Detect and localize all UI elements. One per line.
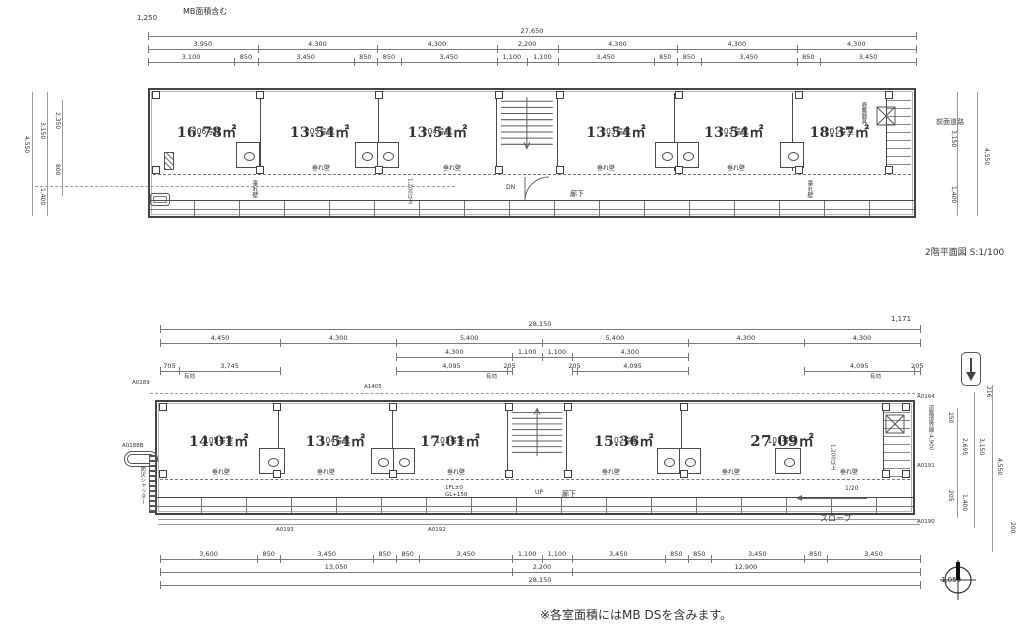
slope-ratio-label: 1/20 [845, 486, 858, 493]
entrance-arrow-box [961, 352, 981, 386]
room-area: 13.54㎡ [306, 434, 366, 450]
dimension-segment: 3,450 [701, 51, 797, 63]
dimension-segment: 12,900 [572, 561, 920, 573]
dimension-segment: 1,100 [512, 548, 542, 560]
dimension-segment [280, 360, 396, 372]
dimension-segment: 4,300 [804, 332, 920, 344]
column-marker [902, 403, 910, 411]
grid-line-a1405 [150, 393, 920, 394]
dimension-segment: 850 [257, 548, 280, 560]
room-area: 17.01㎡ [420, 434, 480, 450]
dimension-segment: 1,100 [542, 346, 572, 358]
column-marker [505, 403, 513, 411]
bath-unit-icon [780, 142, 804, 168]
dim-row-2f-sub: 3,1008503,4508508503,4501,1001,1003,4508… [148, 51, 916, 63]
dimension-segment: 5,400 [542, 332, 688, 344]
dimension-segment: 3,450 [419, 548, 512, 560]
ref-a0192: A0192 [428, 527, 446, 533]
room-area: 13.54㎡ [586, 125, 646, 141]
dimension-segment: 13,050 [160, 561, 512, 573]
label-road-boundary: 道路境界線:4,900 [927, 405, 933, 450]
dimension-segment: 4,095 [396, 360, 507, 372]
room-area: 18.37㎡ [810, 125, 870, 141]
column-marker [885, 91, 893, 99]
dim-216: 216 [984, 386, 991, 397]
bath-unit-icon [657, 448, 701, 474]
dimension-segment: 850 [688, 548, 711, 560]
dimension-segment: 28,150 [160, 318, 920, 330]
dim-right-lower: 1,400 [949, 186, 956, 203]
dimension-segment: 3,950 [148, 38, 258, 50]
dimension-segment [688, 360, 804, 372]
equipment-icon [150, 193, 170, 206]
tarekabe-dashed-line [160, 479, 910, 480]
site-boundary-line [35, 186, 455, 187]
dim-extension-line [62, 100, 63, 196]
dim-row-1f-sub1: 4,3001,1001,1004,300 [160, 346, 920, 358]
label-tarekabe: 垂れ壁 [212, 470, 230, 477]
column-marker [675, 166, 683, 174]
dimension-segment: 850 [654, 51, 678, 63]
dimension-segment: 4,095 [804, 360, 915, 372]
dimension-segment: 4,095 [577, 360, 688, 372]
column-marker [564, 403, 572, 411]
column-marker [556, 91, 564, 99]
dimension-segment: 1,100 [527, 51, 558, 63]
label-tarekabe: 垂れ壁 [722, 470, 740, 477]
dimension-segment: 850 [234, 51, 258, 63]
dimension-segment: 3,450 [280, 548, 373, 560]
dim-row-1f-bottom-sub: 3,6008503,4508508503,4501,1001,1003,4508… [160, 548, 920, 560]
dim-250: 250 [946, 412, 953, 423]
evacuation-equipment-icon [885, 414, 905, 434]
dimension-segment [280, 346, 396, 358]
tarekabe-dashed-line [153, 174, 911, 175]
dimension-segment: 4,450 [160, 332, 280, 344]
column-marker [495, 91, 503, 99]
dim-extension-line [992, 385, 993, 552]
column-marker [795, 91, 803, 99]
column-marker [680, 470, 688, 478]
dimension-segment: 1,100 [497, 51, 528, 63]
label-tarekabe: 垂れ壁 [840, 470, 858, 477]
north-compass-icon [936, 556, 980, 600]
column-marker [375, 91, 383, 99]
stair-direction-label: DN [506, 185, 515, 192]
level-note-1fl: 1FL±0 [445, 485, 463, 491]
dimension-segment: 4,300 [377, 38, 496, 50]
dimension-segment: 4,300 [797, 38, 916, 50]
dimension-segment: 850 [804, 548, 827, 560]
column-marker [564, 470, 572, 478]
dimension-segment: 4,300 [677, 38, 796, 50]
exterior-stair-2f [887, 93, 911, 171]
bath-unit-icon [655, 142, 699, 168]
dimension-segment: 1,100 [542, 548, 572, 560]
ref-a0164: A0164 [917, 394, 935, 400]
bath-unit-icon [355, 142, 399, 168]
corridor-label: 廊下 [570, 190, 584, 198]
dimension-segment: 3,450 [827, 548, 920, 560]
label-evacuation: 避難器具 [860, 102, 866, 124]
bath-unit-icon [236, 142, 260, 168]
ref-a0191: A0191 [917, 463, 935, 469]
column-marker [273, 470, 281, 478]
dim-right-upper: 3,150 [949, 130, 956, 147]
column-marker [902, 470, 910, 478]
dim-left-lower: 1,400 [38, 188, 45, 205]
stairs-icon [508, 405, 566, 477]
label-tarekabe: 垂れ壁 [312, 166, 330, 173]
column-marker [159, 470, 167, 478]
dimension-segment: 4,300 [558, 38, 677, 50]
dim-3150: 3,150 [977, 438, 984, 455]
dim-row-1f-bottom-overall: 28,150 [160, 574, 920, 586]
dimension-segment: 4,300 [572, 346, 688, 358]
label-front-road: 前面道路 [936, 118, 964, 126]
dimension-segment [160, 346, 280, 358]
dim-extension-line [47, 92, 48, 216]
evacuation-equipment-icon [876, 106, 896, 126]
column-marker [882, 403, 890, 411]
dim-left-total: 4,550 [22, 136, 29, 153]
room-201: 201号室 18.37㎡ [793, 93, 886, 171]
room-area: 13.54㎡ [290, 125, 350, 141]
label-slope: スロープ [820, 514, 852, 523]
column-marker [495, 166, 503, 174]
column-hatch-icon [164, 152, 174, 170]
dimension-segment: 850 [677, 51, 701, 63]
label-tarekabe: 垂れ壁 [250, 180, 257, 198]
ref-a0188: A0188B [122, 443, 144, 449]
column-marker [675, 91, 683, 99]
dim-row-2f-overall: 27,650 [148, 25, 916, 37]
dim-row-2f-bays: 3,9504,3004,3002,2004,3004,3004,300 [148, 38, 916, 50]
label-tarekabe: 垂れ壁 [597, 166, 615, 173]
column-marker [152, 166, 160, 174]
dim-1171: 1,171 [891, 315, 911, 323]
dim-extension-line [957, 408, 958, 518]
dimension-segment: 3,745 [179, 360, 280, 372]
floor-plan-2f: 206号室 16.78㎡ 205号室 13.54㎡ 204号室 13.54㎡ [148, 88, 916, 218]
label-yuko: 有効 [184, 374, 195, 380]
dimension-segment: 4,300 [396, 346, 512, 358]
dimension-segment: 2,200 [512, 561, 571, 573]
dim-4550: 4,550 [995, 458, 1002, 475]
dim-left-upper: 3,150 [38, 122, 45, 139]
dim-left-inner-upper: 2,350 [53, 112, 60, 129]
stairs-icon [497, 93, 557, 171]
dimension-segment: 1,100 [512, 346, 542, 358]
dimension-segment: 3,450 [820, 51, 916, 63]
dimension-segment: 28,150 [160, 574, 920, 586]
room-area: 13.54㎡ [704, 125, 764, 141]
dimension-segment [542, 360, 572, 372]
south-wall-windows [150, 200, 914, 216]
dim-1250: 1,250 [137, 14, 157, 22]
column-marker [680, 403, 688, 411]
dim-left-inner-lower: 800 [53, 164, 60, 175]
label-tarekabe: 垂れ壁 [443, 166, 461, 173]
label-tarekabe: 垂れ壁 [317, 470, 335, 477]
label-min-width: 1,200以上 [829, 444, 835, 471]
south-wall-windows [157, 497, 913, 513]
walkway-edge-line [158, 524, 920, 525]
label-tarekabe: 垂れ壁 [805, 180, 812, 198]
bath-unit-icon [259, 448, 285, 474]
dimension-segment: 3,600 [160, 548, 257, 560]
dim-extension-line [957, 92, 958, 216]
dim-extension-line [977, 92, 978, 216]
dimension-segment: 205 [914, 360, 920, 372]
dimension-segment: 850 [797, 51, 821, 63]
dim-205: 205 [946, 490, 953, 501]
dim-right-total: 4,550 [982, 148, 989, 165]
dimension-segment: 5,400 [396, 332, 542, 344]
architectural-drawing-sheet: MB面積含む 1,250 27,650 3,9504,3004,3002,200… [0, 0, 1024, 635]
dim-200: 200 [1008, 522, 1015, 533]
door-swing-icon [524, 176, 550, 202]
dimension-segment: 850 [373, 548, 396, 560]
label-tarekabe: 垂れ壁 [602, 470, 620, 477]
plan-2f-title: 2階平面図 S:1/100 [925, 248, 1004, 258]
dimension-segment: 850 [665, 548, 688, 560]
dim-2695: 2,695 [960, 438, 967, 455]
dimension-segment: 3,100 [148, 51, 234, 63]
dim-row-1f-sub2: 7053,7454,0952052054,0954,095205 [160, 360, 920, 372]
mb-area-note: MB面積含む [183, 7, 227, 16]
column-marker [159, 403, 167, 411]
column-marker [273, 403, 281, 411]
dimension-segment: 3,450 [258, 51, 354, 63]
column-marker [389, 470, 397, 478]
label-tarekabe: 垂れ壁 [447, 470, 465, 477]
column-marker [256, 91, 264, 99]
room-area: 15.36㎡ [594, 434, 654, 450]
dimension-segment: 4,300 [688, 332, 804, 344]
column-marker [885, 166, 893, 174]
dim-row-1f-bottom-mid: 13,0502,20012,900 [160, 561, 920, 573]
staircase-2f [497, 93, 558, 171]
dimension-segment: 850 [377, 51, 401, 63]
room-area: 13.54㎡ [408, 125, 468, 141]
column-marker [256, 166, 264, 174]
footnote: ※各室面積にはMB DSを含みます。 [540, 609, 732, 623]
walkway-edge-line [158, 519, 920, 520]
label-yuko: 有効 [486, 374, 497, 380]
dim-1400: 1,400 [960, 494, 967, 511]
floor-plan-1f: 105号室 14.01㎡ 104号室 13.54㎡ 103号室 17.01㎡ [155, 400, 915, 515]
dimension-segment: 3,450 [401, 51, 497, 63]
column-marker [882, 470, 890, 478]
ref-a1405: A1405 [364, 384, 382, 390]
column-marker [375, 166, 383, 174]
dimension-segment [688, 346, 804, 358]
dim-row-1f-overall: 28,150 [160, 318, 920, 330]
room-area: 14.01㎡ [189, 434, 249, 450]
fire-shutter [149, 455, 156, 513]
label-yuko: 有効 [870, 374, 881, 380]
dimension-segment: 3,450 [711, 548, 804, 560]
ref-a0189: A0189 [132, 380, 150, 386]
column-marker [505, 470, 513, 478]
dim-extension-line [974, 392, 975, 528]
label-tarekabe: 垂れ壁 [727, 166, 745, 173]
column-marker [389, 403, 397, 411]
dimension-segment: 705 [160, 360, 179, 372]
dimension-segment: 4,300 [258, 38, 377, 50]
ref-a0193: A0193 [276, 527, 294, 533]
stair-direction-label: UP [535, 490, 543, 497]
down-arrow-icon [963, 354, 979, 384]
bath-unit-icon [775, 448, 801, 474]
staircase-1f [508, 405, 567, 477]
dimension-segment: 3,450 [572, 548, 665, 560]
dimension-segment [512, 360, 542, 372]
column-marker [795, 166, 803, 174]
dimension-segment: 4,300 [280, 332, 396, 344]
dimension-segment: 850 [354, 51, 378, 63]
dim-extension-line [32, 92, 33, 216]
column-marker [556, 166, 564, 174]
dimension-segment: 850 [396, 548, 419, 560]
dimension-segment: 3,450 [558, 51, 654, 63]
dimension-segment [804, 346, 920, 358]
room-area: 16.78㎡ [177, 125, 237, 141]
label-fire-shutter: 防災シャッター [139, 466, 145, 505]
dim-row-1f-bays: 4,4504,3005,4005,4004,3004,300 [160, 332, 920, 344]
column-marker [152, 91, 160, 99]
dimension-segment: 27,650 [148, 25, 916, 37]
dimension-segment: 2,200 [497, 38, 558, 50]
